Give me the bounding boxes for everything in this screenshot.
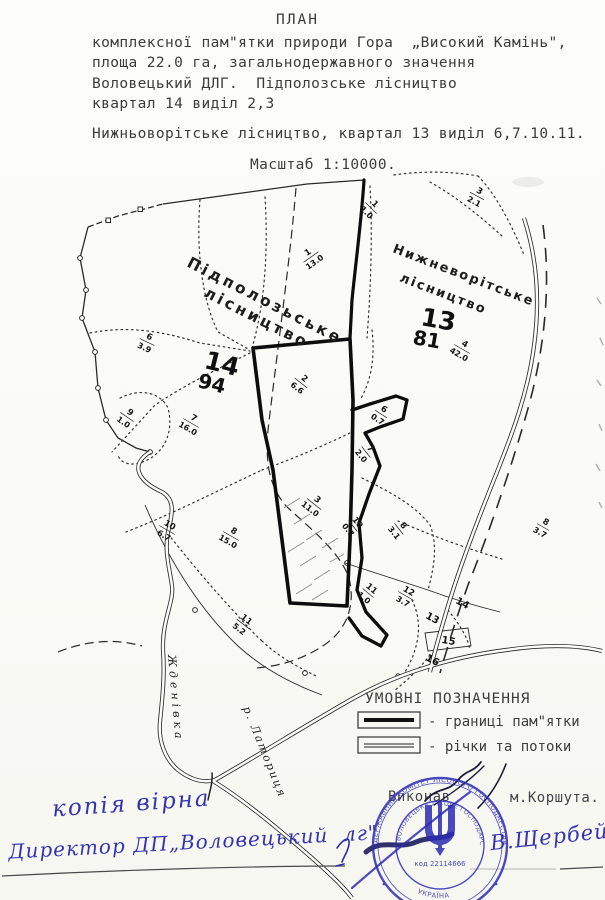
- svg-text:1: 1: [369, 199, 380, 210]
- monument-boundary: [253, 180, 407, 646]
- svg-text:15.0: 15.0: [217, 533, 239, 551]
- svg-text:11.0: 11.0: [299, 499, 320, 519]
- parcel-label: 113.0: [297, 243, 326, 272]
- district-name-left: лісництво: [201, 284, 312, 352]
- svg-text:0.7: 0.7: [369, 412, 386, 427]
- legend-label-boundary: - границі пам"ятки: [428, 714, 580, 730]
- river-label-bottom: р. Латориця: [240, 704, 289, 800]
- thin-boundary-lines: [145, 505, 500, 695]
- parcel-label: 716.0: [177, 409, 205, 437]
- parcel-label: 106.7: [154, 517, 180, 544]
- parcel-label: 60.7: [369, 402, 392, 427]
- svg-text:13.0: 13.0: [304, 253, 326, 272]
- svg-text:11: 11: [363, 582, 379, 597]
- svg-text:8: 8: [397, 521, 409, 532]
- dotted-boundaries: [90, 172, 524, 690]
- svg-text:3: 3: [312, 494, 323, 506]
- svg-text:3.1: 3.1: [386, 525, 402, 542]
- svg-text:4: 4: [459, 339, 469, 351]
- parcel-label: 26.6: [288, 370, 314, 396]
- stamp-country-text: УКРАЇНА: [417, 887, 450, 900]
- document-title: ПЛАН: [276, 10, 597, 31]
- river-label-left: Жденівка: [165, 653, 186, 743]
- svg-text:3: 3: [474, 186, 484, 198]
- quarter-number-left: 14 94: [196, 345, 243, 400]
- survey-marker-circles: [78, 256, 401, 679]
- hatching: [284, 498, 344, 600]
- svg-text:11: 11: [238, 612, 254, 627]
- executor-name: м.Коршута.: [510, 790, 599, 806]
- parcel-label: 815.0: [217, 522, 245, 550]
- svg-text:6: 6: [379, 404, 389, 416]
- svg-text:2.1: 2.1: [466, 194, 483, 209]
- district-name-right: Нижневорітське: [391, 242, 537, 310]
- copy-note-handwriting: копія вірна: [51, 785, 211, 822]
- svg-text:81: 81: [411, 325, 443, 353]
- trident-icon: [425, 801, 455, 856]
- svg-text:12: 12: [401, 584, 416, 599]
- header-line: Воловецький ДЛГ. Підполозське лісництво: [92, 74, 597, 95]
- page-rule: [2, 866, 603, 876]
- scan-artifacts: [596, 298, 603, 508]
- svg-text:6.6: 6.6: [289, 380, 306, 396]
- header-line: площа 22.0 га, загальнодержавного значен…: [92, 53, 597, 74]
- director-line-handwriting: Директор ДП„Воловецький лг": [8, 820, 379, 863]
- header-line: комплексної пам"ятки природи Гора „Висок…: [92, 33, 597, 54]
- svg-text:10: 10: [162, 518, 177, 533]
- svg-text:3.7: 3.7: [531, 525, 548, 540]
- svg-text:1.0: 1.0: [358, 204, 375, 221]
- svg-text:7: 7: [364, 444, 376, 455]
- legend-title: УМОВНІ ПОЗНАЧЕННЯ: [365, 691, 530, 707]
- district-name-right: лісництво: [398, 271, 489, 318]
- legend-symbol-river: [358, 737, 420, 753]
- svg-text:9: 9: [125, 407, 136, 419]
- svg-text:5.2: 5.2: [231, 621, 248, 637]
- executed-by-label: Виконав: [388, 789, 451, 805]
- svg-text:14: 14: [202, 345, 243, 382]
- legend-symbol-boundary: [358, 712, 420, 728]
- parcel-number: 13: [423, 611, 440, 627]
- svg-text:13: 13: [419, 302, 458, 337]
- document-header: ПЛАН комплексної пам"ятки природи Гора „…: [92, 10, 597, 176]
- dashed-trail: [58, 188, 351, 668]
- svg-text:42.0: 42.0: [448, 346, 470, 364]
- stamp-code-text: код 22114666: [414, 860, 466, 868]
- svg-text:94: 94: [196, 368, 229, 398]
- parcel-label: 83.1: [386, 517, 412, 541]
- svg-text:1.0: 1.0: [115, 415, 132, 431]
- scan-smudge: [512, 177, 544, 187]
- svg-text:6.7: 6.7: [155, 528, 172, 543]
- parcel-label: 11.0: [358, 195, 384, 221]
- svg-text:7: 7: [188, 413, 198, 425]
- svg-text:8: 8: [228, 526, 238, 538]
- svg-text:0.7: 0.7: [340, 522, 356, 539]
- parcel-label: 83.7: [531, 515, 554, 540]
- district-name-left: Підполозьське: [184, 254, 345, 348]
- legend: УМОВНІ ПОЗНАЧЕННЯ - границі пам"ятки - р…: [358, 691, 580, 755]
- header-line: квартал 14 виділ 2,3: [92, 94, 597, 115]
- legend-label-river: - річки та потоки: [428, 739, 571, 755]
- parcel-label: 123.7: [393, 583, 419, 610]
- scanned-plan-page: ПЛАН комплексної пам"ятки природи Гора „…: [0, 0, 605, 900]
- parcel-label: 32.1: [465, 183, 489, 209]
- parcel-label: 111.0: [356, 581, 381, 606]
- header-line-district2: Нижньоворітське лісництво, квартал 13 ви…: [92, 124, 597, 145]
- parcel-label: 100.7: [340, 514, 365, 538]
- parcel-label: 311.0: [299, 490, 328, 519]
- svg-text:6: 6: [144, 332, 154, 344]
- signature-name-handwriting: В.Щербей: [489, 819, 605, 855]
- svg-text:8: 8: [540, 517, 550, 529]
- svg-text:2: 2: [299, 373, 310, 385]
- survey-marker-squares: [106, 207, 143, 223]
- map-scale-label: Масштаб 1:10000.: [250, 155, 597, 176]
- parcel-label: 115.2: [230, 611, 256, 637]
- svg-text:2.0: 2.0: [353, 448, 369, 465]
- parcel-label: 63.9: [135, 330, 158, 356]
- parcel-label: 442.0: [448, 335, 476, 363]
- dashed-road-right: [440, 225, 547, 673]
- block-outline: [80, 180, 364, 452]
- svg-text:16.0: 16.0: [177, 420, 199, 438]
- svg-text:1.0: 1.0: [356, 590, 373, 606]
- svg-text:3.9: 3.9: [136, 341, 153, 355]
- parcel-number: 14: [453, 596, 470, 612]
- svg-text:10: 10: [349, 515, 364, 531]
- parcel-label: 91.0: [114, 404, 139, 430]
- svg-text:1: 1: [303, 247, 314, 259]
- parcel-number: 15: [441, 635, 457, 648]
- parcel-number: 16: [423, 653, 440, 669]
- quarter-number-right: 13 81: [411, 302, 458, 356]
- parcel-label: 72.0: [353, 440, 379, 464]
- svg-text:3.7: 3.7: [394, 594, 411, 609]
